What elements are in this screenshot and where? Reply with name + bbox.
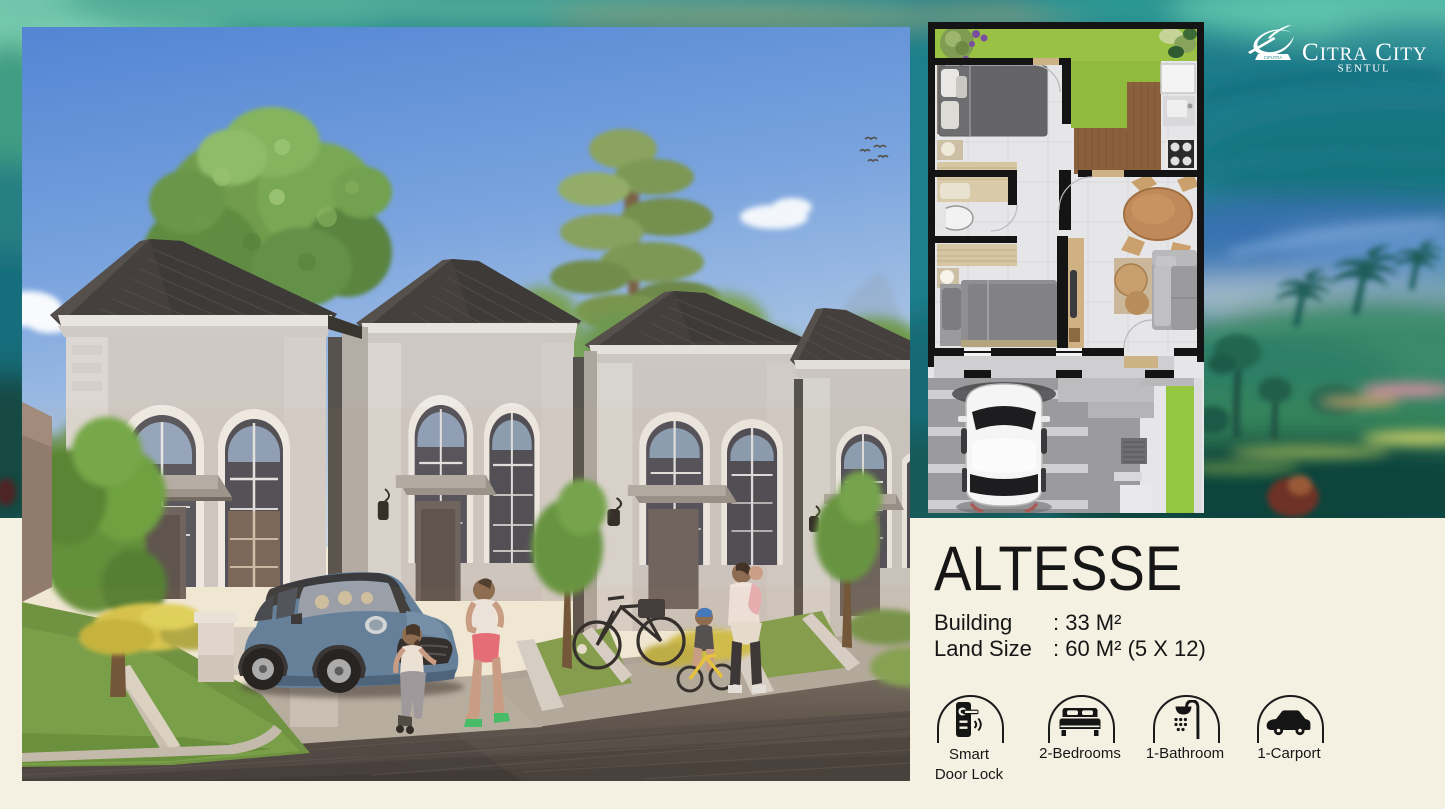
- svg-text:CIPUTRA: CIPUTRA: [1264, 55, 1283, 60]
- svg-text:SENTUL: SENTUL: [1338, 63, 1391, 75]
